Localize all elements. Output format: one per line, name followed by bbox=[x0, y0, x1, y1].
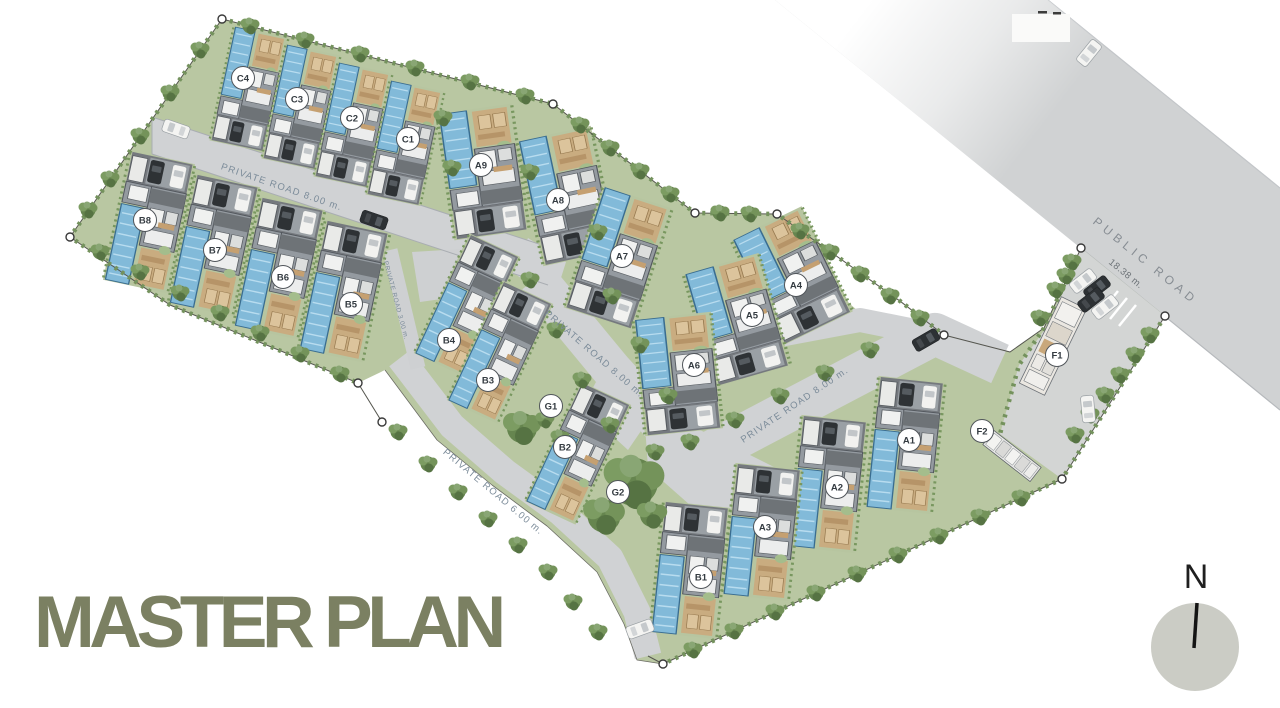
svg-text:B7: B7 bbox=[209, 246, 221, 257]
svg-text:B5: B5 bbox=[345, 300, 358, 311]
svg-text:MASTER PLAN: MASTER PLAN bbox=[34, 582, 502, 663]
svg-text:C2: C2 bbox=[346, 114, 358, 125]
svg-text:A5: A5 bbox=[746, 311, 759, 322]
svg-text:A1: A1 bbox=[903, 436, 916, 447]
svg-text:A8: A8 bbox=[552, 196, 564, 207]
svg-text:B2: B2 bbox=[559, 443, 571, 454]
svg-text:C3: C3 bbox=[291, 95, 303, 106]
svg-text:B1: B1 bbox=[695, 573, 708, 584]
svg-text:A3: A3 bbox=[759, 523, 771, 534]
svg-text:A2: A2 bbox=[831, 483, 843, 494]
svg-text:A4: A4 bbox=[790, 281, 803, 292]
svg-text:B4: B4 bbox=[443, 336, 456, 347]
svg-text:N: N bbox=[1184, 558, 1209, 596]
svg-text:B8: B8 bbox=[139, 216, 151, 227]
svg-text:F1: F1 bbox=[1051, 351, 1063, 362]
svg-text:A9: A9 bbox=[475, 161, 487, 172]
svg-text:G1: G1 bbox=[545, 402, 558, 413]
svg-text:A7: A7 bbox=[616, 252, 628, 263]
svg-text:B3: B3 bbox=[482, 376, 494, 387]
svg-text:C4: C4 bbox=[237, 74, 250, 85]
svg-text:B6: B6 bbox=[277, 273, 289, 284]
svg-text:F2: F2 bbox=[976, 427, 987, 438]
svg-text:G2: G2 bbox=[612, 488, 625, 499]
svg-text:C1: C1 bbox=[402, 135, 415, 146]
svg-text:A6: A6 bbox=[688, 361, 700, 372]
